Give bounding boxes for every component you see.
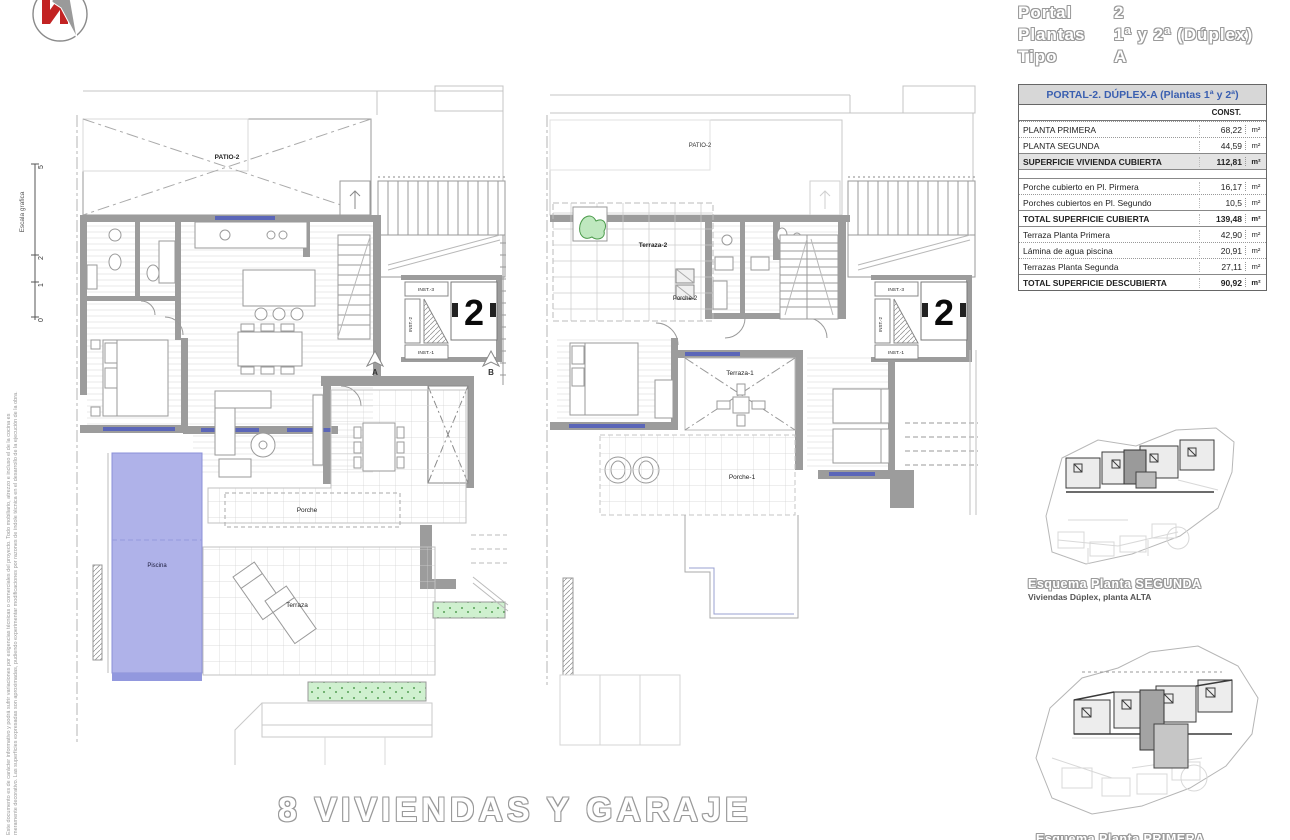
- terraza1-label: Terraza-1: [726, 370, 754, 377]
- internal-stair: [780, 235, 838, 319]
- table-row-total: TOTAL SUPERFICIE CUBIERTA139,48m²: [1019, 210, 1266, 226]
- svg-text:B: B: [488, 368, 494, 377]
- elevator-core: INST.-3 INST.-2 INST.-1 2: [871, 275, 972, 362]
- site-plan-upper-subcaption: Viviendas Dúplex, planta ALTA: [1028, 592, 1268, 602]
- scale-tick-0: 0: [38, 318, 45, 322]
- scale-tick-2: 2: [38, 256, 45, 260]
- areas-table-header: CONST.: [1019, 105, 1266, 121]
- elevator-core: INST.-3 INST.-2 INST.-1 2: [401, 275, 502, 362]
- unit-number: 2: [934, 292, 954, 333]
- graphic-scale: 5 2 1 0 Escala grafica: [14, 142, 48, 337]
- svg-text:A: A: [372, 368, 378, 377]
- portal-label: Portal: [1018, 2, 1114, 24]
- table-row: PLANTA PRIMERA68,22m²: [1019, 121, 1266, 137]
- porche2-label: Porche-2: [673, 296, 698, 302]
- porche1-label: Porche-1: [729, 474, 756, 481]
- developer-logo-icon: [14, 0, 98, 50]
- patio-label: PATIO-2: [215, 154, 240, 161]
- floor-plan-second: PATIO-2: [545, 85, 985, 765]
- site-plan-upper-caption: Esquema Planta SEGUNDA: [1028, 577, 1268, 591]
- site-plan-lower: Esquema Planta PRIMERA: [1022, 638, 1272, 840]
- patio-area: PATIO-2: [83, 119, 371, 215]
- pool: Piscina: [108, 453, 202, 681]
- areas-table: PORTAL-2. DÚPLEX-A (Plantas 1ª y 2ª) CON…: [1018, 84, 1267, 291]
- table-spacer: [1019, 169, 1266, 178]
- site-plan-upper-drawing: [1028, 420, 1268, 575]
- table-row: PLANTA SEGUNDA44,59m²: [1019, 137, 1266, 153]
- tipo-label: Tipo: [1018, 46, 1114, 68]
- inst3-label: INST.-3: [888, 287, 904, 293]
- portal-value: 2: [1114, 2, 1124, 24]
- table-row: Terraza Planta Primera42,90m²: [1019, 226, 1266, 242]
- porche-label: Porche: [297, 507, 318, 514]
- table-row-total: SUPERFICIE VIVIENDA CUBIERTA112,81m²: [1019, 153, 1266, 169]
- areas-table-title: PORTAL-2. DÚPLEX-A (Plantas 1ª y 2ª): [1019, 85, 1266, 105]
- tipo-value: A: [1114, 46, 1127, 68]
- site-plan-upper: Esquema Planta SEGUNDA Viviendas Dúplex,…: [1028, 420, 1268, 602]
- table-row-total: TOTAL SUPERFICIE DESCUBIERTA90,92m²: [1019, 274, 1266, 290]
- scale-label: Escala grafica: [19, 191, 26, 232]
- terraza1-void: Terraza-1: [685, 358, 795, 430]
- table-row: Lámina de agua piscina20,91m²: [1019, 242, 1266, 258]
- unit-number: 2: [464, 292, 484, 333]
- plan-sheet: { "header": { "rows": [ {"label": "Porta…: [0, 0, 1290, 840]
- planter-1: [433, 602, 505, 618]
- patio-label: PATIO-2: [689, 143, 712, 149]
- plantas-label: Plantas: [1018, 24, 1114, 46]
- const-column-header: CONST.: [1199, 108, 1243, 117]
- porche1-area: Porche-1: [600, 435, 795, 515]
- piscina-label: Piscina: [147, 563, 167, 569]
- patio-area: PATIO-2: [550, 120, 842, 215]
- inst3-label: INST.-3: [418, 287, 434, 293]
- terraza2-label: Terraza-2: [639, 242, 668, 249]
- inst2-label: INST.-2: [408, 316, 413, 332]
- plantas-value: 1ª y 2ª (Dúplex): [1114, 24, 1253, 46]
- table-row: Porche cubierto en Pl. Pirmera16,17m²: [1019, 178, 1266, 194]
- site-plan-lower-caption: Esquema Planta PRIMERA: [1036, 832, 1205, 840]
- site-plan-lower-drawing: [1022, 638, 1272, 830]
- internal-stair: [338, 235, 370, 339]
- inst2-label: INST.-2: [878, 316, 883, 332]
- bedroom: [91, 340, 168, 416]
- sheet-header: Portal2 Plantas1ª y 2ª (Dúplex) TipoA: [1018, 2, 1278, 68]
- door-arcs: [656, 318, 827, 345]
- developer-logo: [14, 0, 98, 50]
- table-row: Terrazas Planta Segunda27,11m²: [1019, 258, 1266, 274]
- plant-icon: [580, 216, 606, 239]
- floor-plan-first: PATIO-2: [75, 85, 510, 765]
- inst1-label: INST.-1: [418, 350, 434, 356]
- disclaimer-text: Este documento es de carácter informativ…: [6, 387, 20, 835]
- project-title: 8 VIVIENDAS Y GARAJES: [278, 791, 748, 840]
- terraza-label: Terraza: [286, 602, 308, 609]
- scale-tick-5: 5: [38, 165, 45, 169]
- inst1-label: INST.-1: [888, 350, 904, 356]
- planter-2: [308, 682, 426, 701]
- scale-tick-1: 1: [38, 283, 45, 287]
- table-row: Porches cubiertos en Pl. Segundo10,5m²: [1019, 194, 1266, 210]
- terraza2-area: Terraza-2 Porche-2: [553, 203, 713, 321]
